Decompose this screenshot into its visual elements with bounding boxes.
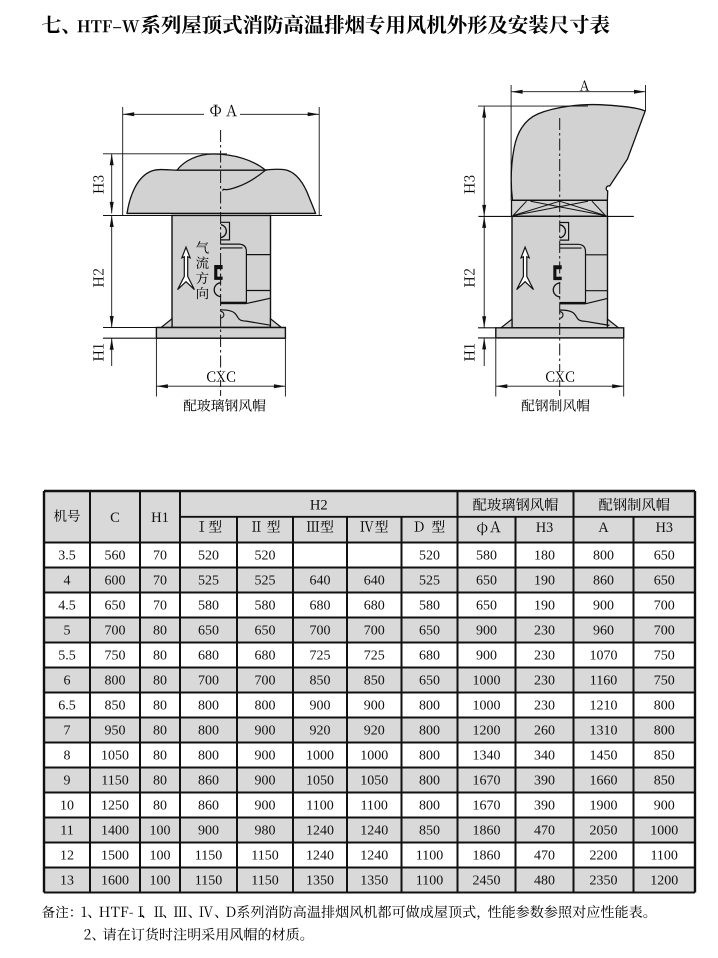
svg-text:1240: 1240 <box>306 823 334 838</box>
svg-text:800: 800 <box>654 723 675 738</box>
svg-text:H2: H2 <box>310 497 328 513</box>
svg-text:1350: 1350 <box>360 873 388 888</box>
svg-text:11: 11 <box>60 823 73 838</box>
svg-text:3.5: 3.5 <box>58 548 76 563</box>
svg-text:4.5: 4.5 <box>58 598 76 613</box>
svg-text:800: 800 <box>419 748 440 763</box>
svg-text:650: 650 <box>654 548 675 563</box>
svg-text:800: 800 <box>198 698 219 713</box>
svg-text:950: 950 <box>105 723 126 738</box>
svg-text:900: 900 <box>255 748 276 763</box>
svg-text:525: 525 <box>255 573 276 588</box>
svg-text:1000: 1000 <box>306 748 334 763</box>
svg-text:H1: H1 <box>151 510 169 526</box>
svg-text:640: 640 <box>364 573 385 588</box>
svg-text:230: 230 <box>534 673 555 688</box>
svg-text:900: 900 <box>654 798 675 813</box>
svg-text:2200: 2200 <box>590 848 618 863</box>
svg-text:800: 800 <box>419 798 440 813</box>
svg-text:6.5: 6.5 <box>58 698 76 713</box>
svg-text:70: 70 <box>153 573 167 588</box>
svg-text:700: 700 <box>105 623 126 638</box>
svg-text:80: 80 <box>153 748 167 763</box>
svg-text:1000: 1000 <box>473 698 501 713</box>
svg-text:1050: 1050 <box>360 773 388 788</box>
svg-text:900: 900 <box>255 773 276 788</box>
svg-text:1050: 1050 <box>306 773 334 788</box>
svg-text:80: 80 <box>153 723 167 738</box>
svg-text:C: C <box>110 510 120 526</box>
svg-text:850: 850 <box>654 773 675 788</box>
svg-text:920: 920 <box>364 723 385 738</box>
svg-text:1200: 1200 <box>650 873 678 888</box>
svg-text:1400: 1400 <box>101 823 129 838</box>
svg-text:100: 100 <box>150 873 171 888</box>
svg-text:580: 580 <box>198 598 219 613</box>
svg-text:850: 850 <box>364 673 385 688</box>
svg-text:470: 470 <box>534 823 555 838</box>
svg-text:A: A <box>598 520 609 536</box>
svg-text:70: 70 <box>153 548 167 563</box>
svg-text:340: 340 <box>534 748 555 763</box>
svg-text:725: 725 <box>364 648 385 663</box>
svg-text:900: 900 <box>364 698 385 713</box>
svg-text:850: 850 <box>654 748 675 763</box>
svg-text:470: 470 <box>534 848 555 863</box>
svg-text:520: 520 <box>419 548 440 563</box>
svg-text:1240: 1240 <box>306 848 334 863</box>
svg-text:H3: H3 <box>536 520 553 536</box>
svg-text:2450: 2450 <box>473 873 501 888</box>
svg-text:2050: 2050 <box>590 823 618 838</box>
svg-text:80: 80 <box>153 673 167 688</box>
svg-text:850: 850 <box>419 823 440 838</box>
svg-text:680: 680 <box>255 648 276 663</box>
svg-text:190: 190 <box>534 573 555 588</box>
svg-text:1000: 1000 <box>650 823 678 838</box>
svg-text:800: 800 <box>105 673 126 688</box>
svg-text:100: 100 <box>150 823 171 838</box>
svg-text:700: 700 <box>654 598 675 613</box>
svg-text:725: 725 <box>310 648 331 663</box>
svg-text:5.5: 5.5 <box>58 648 76 663</box>
svg-text:700: 700 <box>198 673 219 688</box>
svg-text:1350: 1350 <box>306 873 334 888</box>
svg-text:8: 8 <box>64 748 71 763</box>
svg-text:1100: 1100 <box>306 798 333 813</box>
svg-text:920: 920 <box>310 723 331 738</box>
svg-text:700: 700 <box>310 623 331 638</box>
svg-text:7: 7 <box>64 723 71 738</box>
svg-text:1240: 1240 <box>360 848 388 863</box>
svg-text:650: 650 <box>255 623 276 638</box>
svg-text:700: 700 <box>654 623 675 638</box>
svg-text:800: 800 <box>419 698 440 713</box>
svg-text:850: 850 <box>105 698 126 713</box>
svg-text:580: 580 <box>255 598 276 613</box>
svg-text:520: 520 <box>198 548 219 563</box>
svg-text:650: 650 <box>105 598 126 613</box>
svg-text:1100: 1100 <box>360 798 387 813</box>
svg-text:1240: 1240 <box>360 823 388 838</box>
svg-text:1670: 1670 <box>473 773 501 788</box>
svg-text:1070: 1070 <box>590 648 618 663</box>
svg-text:2350: 2350 <box>590 873 618 888</box>
svg-text:230: 230 <box>534 698 555 713</box>
svg-text:390: 390 <box>534 773 555 788</box>
svg-text:680: 680 <box>198 648 219 663</box>
svg-text:900: 900 <box>593 598 614 613</box>
svg-text:680: 680 <box>310 598 331 613</box>
svg-text:80: 80 <box>153 798 167 813</box>
svg-text:650: 650 <box>476 573 497 588</box>
svg-text:H3: H3 <box>656 520 673 536</box>
svg-text:900: 900 <box>476 648 497 663</box>
svg-text:750: 750 <box>105 648 126 663</box>
svg-text:580: 580 <box>476 548 497 563</box>
svg-text:800: 800 <box>419 773 440 788</box>
svg-text:1310: 1310 <box>590 723 618 738</box>
svg-text:1050: 1050 <box>101 748 129 763</box>
svg-text:1860: 1860 <box>473 848 501 863</box>
svg-text:860: 860 <box>593 573 614 588</box>
svg-text:800: 800 <box>255 698 276 713</box>
svg-text:520: 520 <box>255 548 276 563</box>
svg-text:80: 80 <box>153 773 167 788</box>
svg-text:1200: 1200 <box>473 723 501 738</box>
svg-text:1660: 1660 <box>590 773 618 788</box>
svg-text:1670: 1670 <box>473 798 501 813</box>
svg-text:1900: 1900 <box>590 798 618 813</box>
svg-text:800: 800 <box>419 723 440 738</box>
svg-text:6: 6 <box>64 673 71 688</box>
svg-text:9: 9 <box>64 773 71 788</box>
svg-text:10: 10 <box>60 798 74 813</box>
svg-text:180: 180 <box>534 548 555 563</box>
svg-text:1100: 1100 <box>650 848 677 863</box>
svg-text:800: 800 <box>593 548 614 563</box>
svg-text:1000: 1000 <box>360 748 388 763</box>
svg-text:525: 525 <box>198 573 219 588</box>
svg-text:560: 560 <box>105 548 126 563</box>
svg-text:800: 800 <box>198 723 219 738</box>
svg-text:750: 750 <box>654 648 675 663</box>
svg-text:900: 900 <box>476 623 497 638</box>
svg-text:230: 230 <box>534 623 555 638</box>
svg-text:850: 850 <box>310 673 331 688</box>
svg-text:5: 5 <box>64 623 71 638</box>
svg-text:1450: 1450 <box>590 748 618 763</box>
svg-text:1150: 1150 <box>195 848 222 863</box>
svg-text:960: 960 <box>593 623 614 638</box>
svg-text:900: 900 <box>310 698 331 713</box>
svg-text:13: 13 <box>60 873 74 888</box>
svg-text:230: 230 <box>534 648 555 663</box>
svg-text:12: 12 <box>60 848 74 863</box>
svg-text:600: 600 <box>105 573 126 588</box>
svg-text:80: 80 <box>153 623 167 638</box>
svg-text:480: 480 <box>534 873 555 888</box>
svg-text:980: 980 <box>255 823 276 838</box>
svg-text:1150: 1150 <box>251 848 278 863</box>
svg-text:900: 900 <box>255 798 276 813</box>
svg-text:800: 800 <box>654 698 675 713</box>
svg-text:80: 80 <box>153 698 167 713</box>
svg-text:1100: 1100 <box>416 848 443 863</box>
svg-text:1600: 1600 <box>101 873 129 888</box>
svg-text:4: 4 <box>64 573 71 588</box>
svg-text:1100: 1100 <box>416 873 443 888</box>
svg-text:650: 650 <box>419 623 440 638</box>
svg-text:700: 700 <box>364 623 385 638</box>
svg-text:680: 680 <box>419 648 440 663</box>
svg-text:750: 750 <box>654 673 675 688</box>
svg-text:640: 640 <box>310 573 331 588</box>
svg-text:860: 860 <box>198 773 219 788</box>
svg-text:100: 100 <box>150 848 171 863</box>
svg-text:390: 390 <box>534 798 555 813</box>
svg-text:260: 260 <box>534 723 555 738</box>
svg-text:1340: 1340 <box>473 748 501 763</box>
svg-text:900: 900 <box>255 723 276 738</box>
svg-text:190: 190 <box>534 598 555 613</box>
svg-text:1160: 1160 <box>590 673 617 688</box>
svg-text:1150: 1150 <box>251 873 278 888</box>
svg-text:1210: 1210 <box>590 698 618 713</box>
svg-text:1860: 1860 <box>473 823 501 838</box>
svg-text:650: 650 <box>198 623 219 638</box>
svg-text:1150: 1150 <box>101 773 128 788</box>
svg-text:680: 680 <box>364 598 385 613</box>
svg-text:860: 860 <box>198 798 219 813</box>
svg-text:1250: 1250 <box>101 798 129 813</box>
svg-text:1500: 1500 <box>101 848 129 863</box>
svg-text:800: 800 <box>198 748 219 763</box>
svg-text:1000: 1000 <box>473 673 501 688</box>
svg-text:700: 700 <box>255 673 276 688</box>
svg-text:1150: 1150 <box>195 873 222 888</box>
svg-text:70: 70 <box>153 598 167 613</box>
svg-text:80: 80 <box>153 648 167 663</box>
svg-text:525: 525 <box>419 573 440 588</box>
svg-text:650: 650 <box>419 673 440 688</box>
svg-text:580: 580 <box>419 598 440 613</box>
svg-text:650: 650 <box>476 598 497 613</box>
svg-text:650: 650 <box>654 573 675 588</box>
svg-text:900: 900 <box>198 823 219 838</box>
